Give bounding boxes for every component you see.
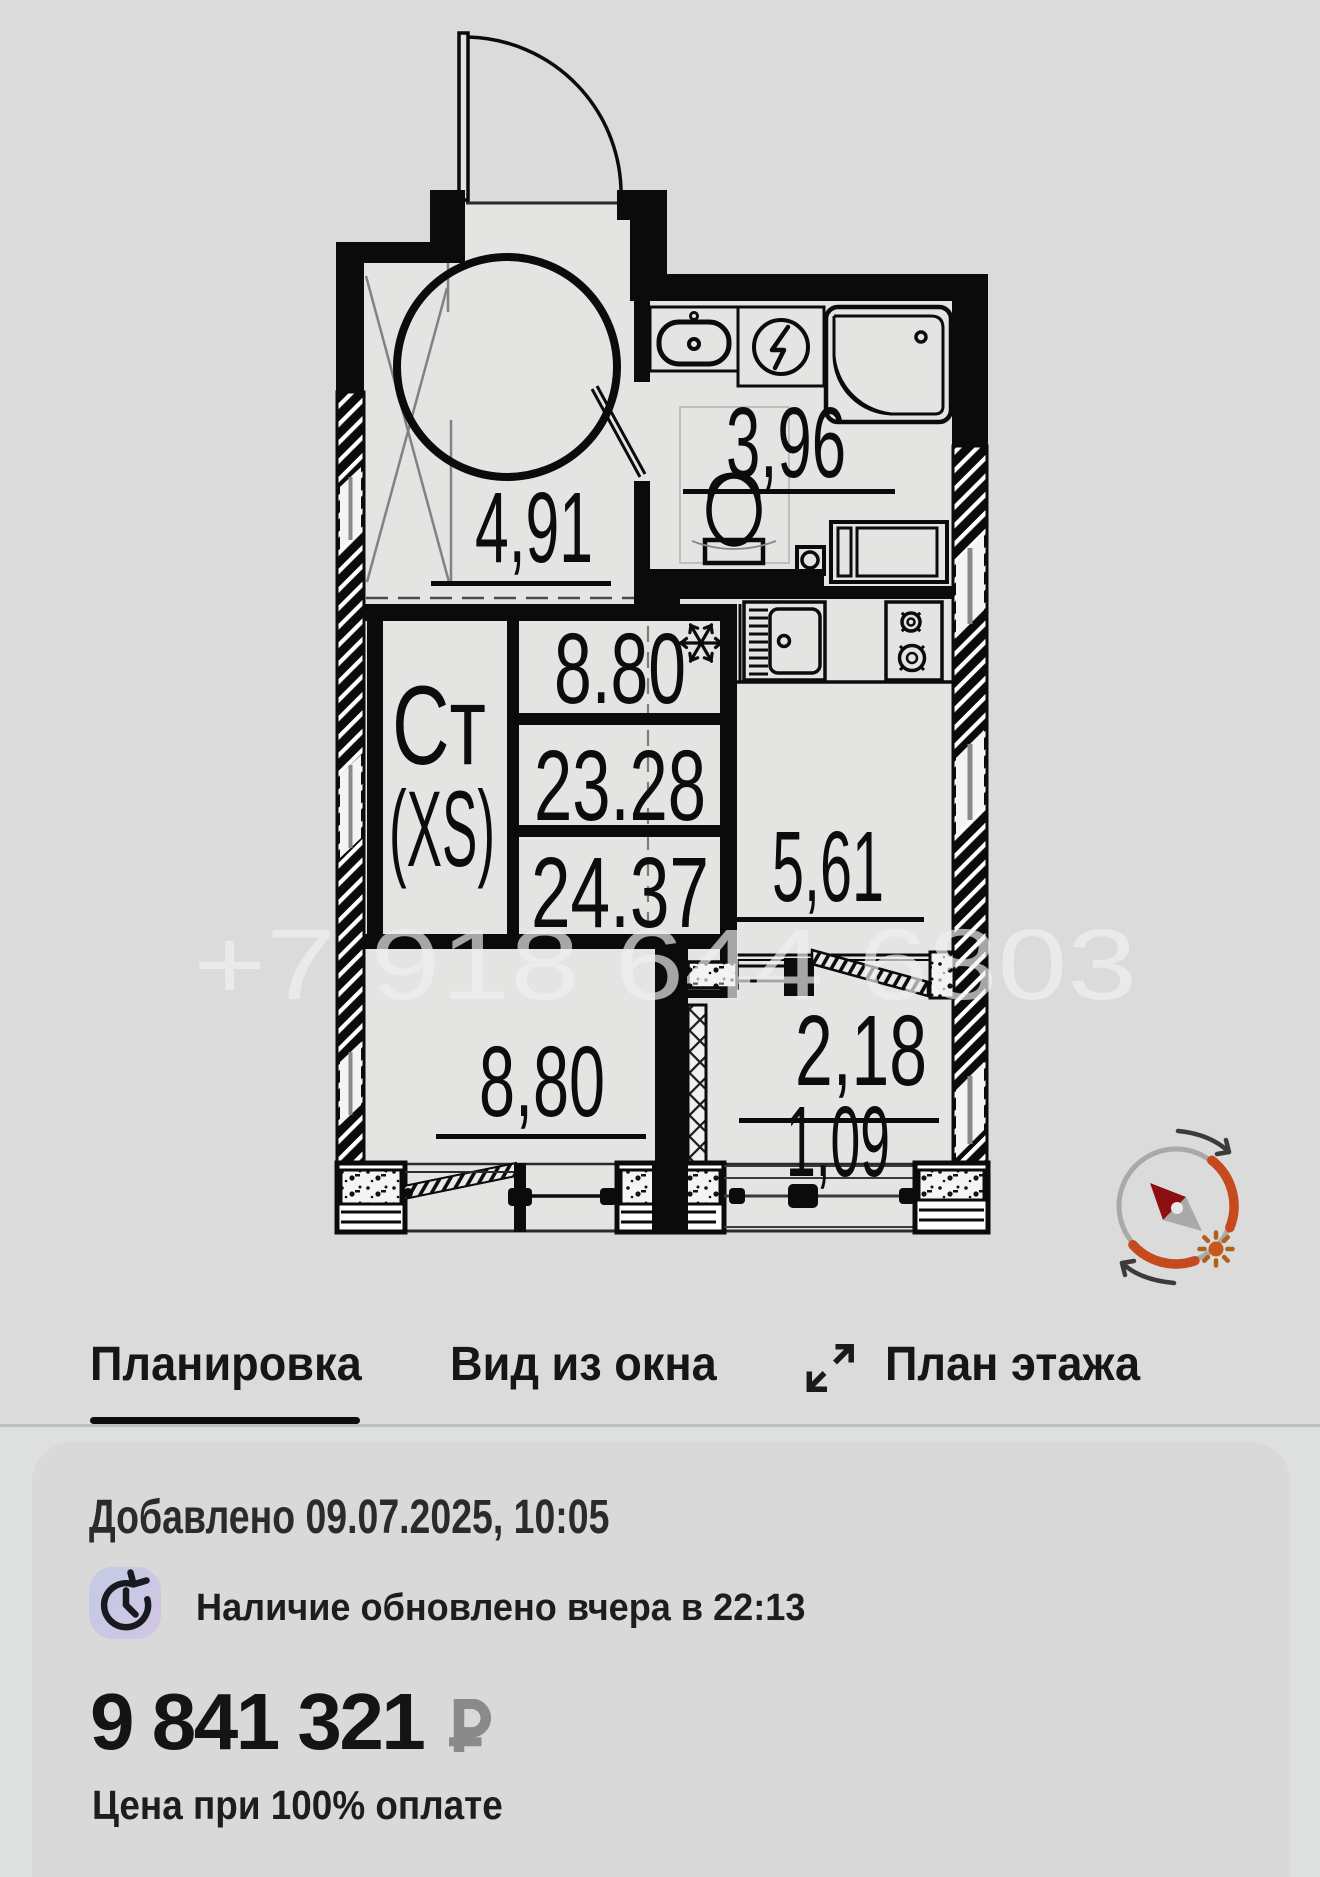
svg-text:5,61: 5,61 (772, 811, 884, 923)
svg-text:+7 918 644 6803: +7 918 644 6803 (193, 909, 1137, 1021)
svg-text:(XS): (XS) (389, 768, 495, 889)
svg-text:8,80: 8,80 (479, 1026, 605, 1138)
svg-text:8.80: 8.80 (554, 613, 686, 725)
svg-text:1,09: 1,09 (786, 1086, 890, 1198)
svg-text:4,91: 4,91 (475, 472, 593, 584)
svg-text:23.28: 23.28 (534, 730, 706, 842)
svg-text:3,96: 3,96 (726, 387, 846, 499)
